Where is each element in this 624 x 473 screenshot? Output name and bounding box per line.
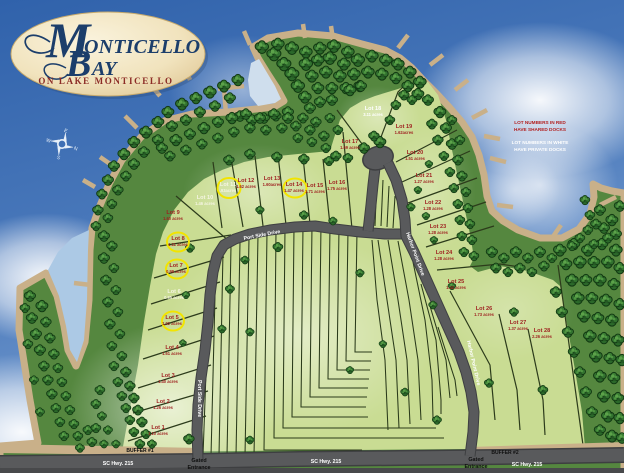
svg-text:Entrance: Entrance — [187, 465, 210, 471]
svg-text:1.69 acres: 1.69 acres — [340, 145, 361, 150]
svg-text:1.11 acres: 1.11 acres — [168, 242, 188, 247]
svg-text:1.28 acres: 1.28 acres — [428, 230, 449, 235]
svg-text:SC Hwy. 215: SC Hwy. 215 — [103, 461, 134, 467]
svg-text:1.60acres: 1.60acres — [263, 182, 282, 187]
svg-text:HAVE SHARED DOCKS: HAVE SHARED DOCKS — [514, 127, 566, 132]
svg-text:LOT NUMBERS IN RED: LOT NUMBERS IN RED — [514, 120, 566, 125]
svg-text:ON LAKE MONTICELLO: ON LAKE MONTICELLO — [38, 76, 173, 86]
svg-text:1.61 acres: 1.61 acres — [162, 351, 183, 356]
svg-text:1.71 acres: 1.71 acres — [305, 189, 326, 194]
svg-text:1.28 acres: 1.28 acres — [434, 256, 455, 261]
svg-text:1.46 acres: 1.46 acres — [195, 201, 216, 206]
svg-text:1.73 acres: 1.73 acres — [474, 312, 495, 317]
svg-text:ONTICELLO: ONTICELLO — [84, 36, 200, 58]
svg-text:Gated: Gated — [191, 458, 206, 464]
svg-text:Gated: Gated — [468, 457, 483, 463]
svg-text:0.95 acres: 0.95 acres — [164, 295, 185, 300]
svg-text:LOT NUMBERS IN WHITE: LOT NUMBERS IN WHITE — [512, 140, 569, 145]
svg-text:1.26 acres: 1.26 acres — [153, 405, 174, 410]
svg-text:1.47 acres: 1.47 acres — [284, 188, 305, 193]
svg-text:Entrance: Entrance — [464, 464, 487, 470]
svg-text:BUFFER #2: BUFFER #2 — [491, 450, 518, 456]
svg-text:.93acres: .93acres — [220, 188, 237, 193]
svg-text:1.02 acres: 1.02 acres — [162, 321, 183, 326]
svg-text:1.62acres: 1.62acres — [395, 130, 414, 135]
svg-text:2.26 acres: 2.26 acres — [532, 334, 553, 339]
svg-text:1.60 acres: 1.60 acres — [163, 216, 184, 221]
svg-text:1.62 acres: 1.62 acres — [236, 184, 257, 189]
svg-text:3.11 acres: 3.11 acres — [363, 112, 383, 117]
svg-text:SC Hwy. 215: SC Hwy. 215 — [512, 462, 543, 468]
svg-text:1.10 acres: 1.10 acres — [148, 431, 169, 436]
svg-text:1.28 acres: 1.28 acres — [423, 206, 444, 211]
svg-text:Port Side Drive: Port Side Drive — [196, 380, 202, 417]
svg-text:0.99 acres: 0.99 acres — [166, 269, 187, 274]
svg-text:1.51 acres: 1.51 acres — [405, 156, 426, 161]
svg-text:1.40 acres: 1.40 acres — [158, 379, 179, 384]
svg-text:1.37 acres: 1.37 acres — [508, 326, 529, 331]
svg-text:1.75 acres: 1.75 acres — [327, 186, 348, 191]
svg-text:HAVE PRIVATE DOCKS: HAVE PRIVATE DOCKS — [514, 147, 566, 152]
svg-text:SC Hwy. 215: SC Hwy. 215 — [311, 459, 342, 465]
svg-text:1.27 acres: 1.27 acres — [414, 179, 435, 184]
svg-text:BUFFER #1: BUFFER #1 — [126, 448, 153, 454]
svg-text:1.42 acres: 1.42 acres — [446, 285, 467, 290]
